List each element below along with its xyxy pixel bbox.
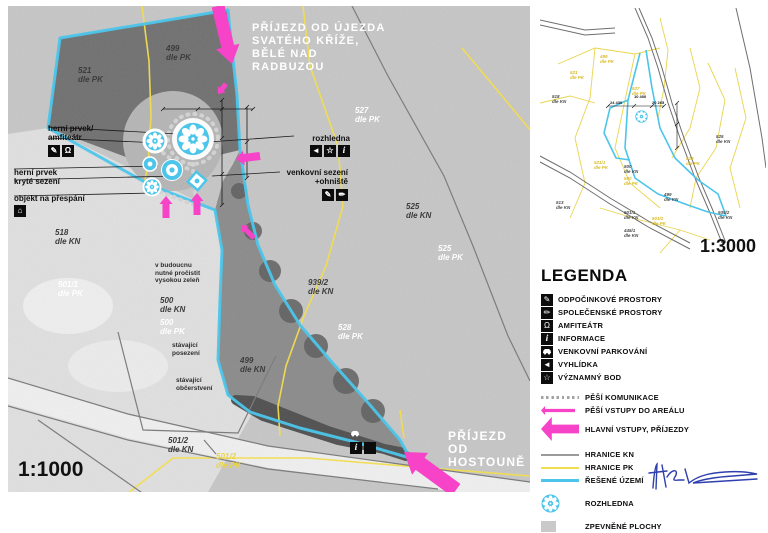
dimension-label: 10 400 bbox=[634, 94, 646, 99]
legend-item-label: HRANICE PK bbox=[585, 463, 634, 472]
legend-item-label: ZPEVNĚNÉ PLOCHY bbox=[585, 522, 662, 531]
arrow-big-swatch bbox=[541, 417, 585, 441]
overview-parcel-label: 501/1 dle KN bbox=[624, 210, 638, 220]
viewpoint-icon: ◄ bbox=[541, 359, 553, 371]
patch-swatch bbox=[541, 521, 585, 532]
legend-item-label: INFORMACE bbox=[558, 334, 605, 343]
landmark-swatch: ☆ bbox=[541, 372, 558, 384]
legend-item: PĚŠÍ KOMUNIKACE bbox=[541, 391, 765, 404]
signature-scribble bbox=[645, 458, 765, 496]
legend-item-label: HRANICE KN bbox=[585, 450, 634, 459]
overview-parcel-label: 525 dle KN bbox=[716, 134, 730, 144]
car-icon bbox=[541, 346, 553, 358]
legend-item-label: VYHLÍDKA bbox=[558, 360, 598, 369]
amphi-icon: Ω bbox=[541, 320, 553, 332]
overview-parcel-label: 499 dle PK bbox=[600, 54, 614, 64]
dimension-label: 24 430 bbox=[610, 100, 622, 105]
landmark-icon: ☆ bbox=[541, 372, 553, 384]
overview-parcel-label: 528 dle PK bbox=[686, 156, 700, 166]
line-cyan-swatch bbox=[541, 479, 585, 482]
legend-item: ZPEVNĚNÉ PLOCHY bbox=[541, 520, 765, 533]
legend-item-label: SPOLEČENSKÉ PROSTORY bbox=[558, 308, 662, 317]
rest-swatch: ✎ bbox=[541, 294, 558, 306]
amphi-swatch: Ω bbox=[541, 320, 558, 332]
overview-parcel-label: 500 dle PK bbox=[624, 176, 638, 186]
overview-parcel-label: 513 dle KN bbox=[556, 200, 570, 210]
legend-item: VENKOVNÍ PARKOVÁNÍ bbox=[541, 345, 765, 358]
legend-item-label: AMFITEÁTR bbox=[558, 321, 603, 330]
legend-item: iINFORMACE bbox=[541, 332, 765, 345]
legend-item-label: PĚŠÍ VSTUPY DO AREÁLU bbox=[585, 406, 685, 415]
dimension-label: 20 265 bbox=[652, 100, 664, 105]
main-map-drawing bbox=[8, 6, 530, 492]
overview-parcel-label: 521 dle PK bbox=[570, 70, 584, 80]
overview-map: 518 dle KN521 dle PK499 dle PK527 dle PK… bbox=[540, 8, 766, 260]
legend-item-label: ODPOČINKOVÉ PROSTORY bbox=[558, 295, 662, 304]
overview-parcel-label: 518 dle KN bbox=[552, 94, 566, 104]
legend-item: HLAVNÍ VSTUPY, PŘÍJEZDY bbox=[541, 417, 765, 441]
info-icon: i bbox=[541, 333, 553, 345]
overview-parcel-label: 501/2 dle PK bbox=[652, 216, 666, 226]
legend-item-label: HLAVNÍ VSTUPY, PŘÍJEZDY bbox=[585, 425, 689, 434]
social-swatch: ✏ bbox=[541, 307, 558, 319]
main-site-plan-map: PŘÍJEZD OD ÚJEZDA SVATÉHO KŘÍŽE, BĚLÉ NA… bbox=[8, 6, 530, 492]
legend-item-label: VÝZNAMNÝ BOD bbox=[558, 373, 621, 382]
overview-map-scale: 1:3000 bbox=[700, 236, 756, 257]
legend-item: ✏SPOLEČENSKÉ PROSTORY bbox=[541, 306, 765, 319]
info-swatch: i bbox=[541, 333, 558, 345]
dots-swatch bbox=[541, 396, 585, 399]
legend-item: ☆VÝZNAMNÝ BOD bbox=[541, 371, 765, 384]
overview-parcel-label: 445/1 dle KN bbox=[624, 228, 638, 238]
legend-item-label: ŘEŠENÉ ÚZEMÍ bbox=[585, 476, 644, 485]
viewpoint-swatch: ◄ bbox=[541, 359, 558, 371]
rest-icon: ✎ bbox=[541, 294, 553, 306]
car-swatch bbox=[541, 346, 558, 358]
legend-item: PĚŠÍ VSTUPY DO AREÁLU bbox=[541, 404, 765, 417]
line-yellow-swatch bbox=[541, 467, 585, 469]
overview-parcel-label: 939/2 dle KN bbox=[718, 210, 732, 220]
legend-item-label: PĚŠÍ KOMUNIKACE bbox=[585, 393, 659, 402]
social-icon: ✏ bbox=[541, 307, 553, 319]
overview-parcel-label: 499 dle KN bbox=[664, 192, 678, 202]
line-gray-swatch bbox=[541, 454, 585, 456]
overview-parcel-label: 500 dle KN bbox=[624, 164, 638, 174]
legend-item: ΩAMFITEÁTR bbox=[541, 319, 765, 332]
legend-item: ✎ODPOČINKOVÉ PROSTORY bbox=[541, 293, 765, 306]
legend-items: ✎ODPOČINKOVÉ PROSTORY✏SPOLEČENSKÉ PROSTO… bbox=[541, 293, 765, 533]
arrow-small-swatch bbox=[541, 406, 585, 415]
overview-parcel-label: 521/1 dle PK bbox=[594, 160, 608, 170]
legend-item: ◄VYHLÍDKA bbox=[541, 358, 765, 371]
legend-item-label: ROZHLEDNA bbox=[585, 499, 634, 508]
legend-item-label: VENKOVNÍ PARKOVÁNÍ bbox=[558, 347, 647, 356]
legend-title: LEGENDA bbox=[541, 266, 765, 286]
